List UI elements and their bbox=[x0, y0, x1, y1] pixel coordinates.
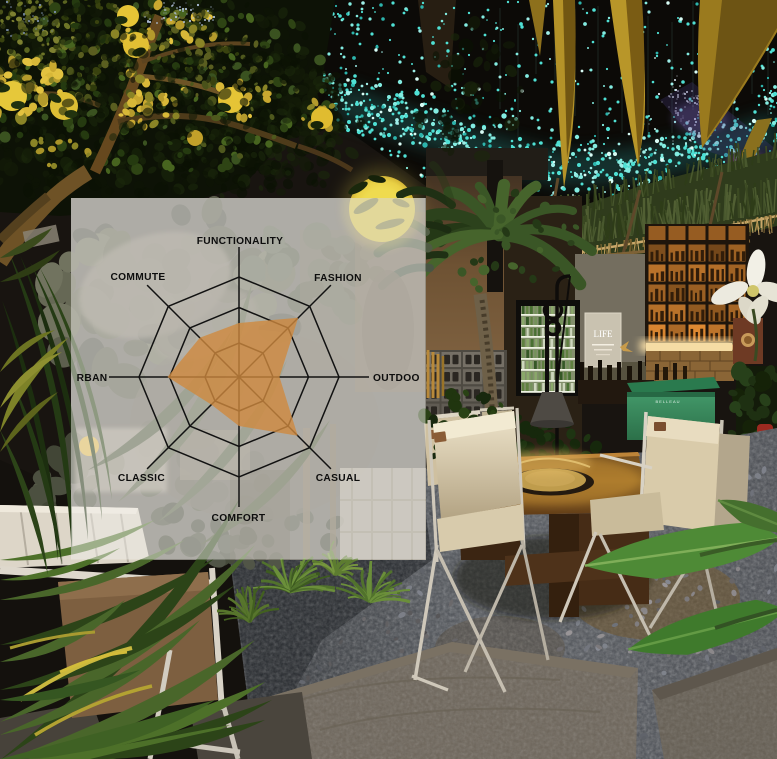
svg-text:COMMUTE: COMMUTE bbox=[110, 272, 165, 283]
svg-text:CASUAL: CASUAL bbox=[316, 473, 361, 484]
svg-text:RBAN: RBAN bbox=[77, 373, 108, 384]
svg-text:COMFORT: COMFORT bbox=[212, 513, 266, 524]
svg-text:BELLEAU: BELLEAU bbox=[655, 399, 680, 404]
svg-text:LIFE: LIFE bbox=[594, 329, 614, 339]
svg-text:FUNCTIONALITY: FUNCTIONALITY bbox=[197, 236, 284, 247]
svg-text:FASHION: FASHION bbox=[314, 273, 362, 284]
svg-text:CLASSIC: CLASSIC bbox=[118, 473, 165, 484]
svg-text:OUTDOO: OUTDOO bbox=[373, 373, 420, 384]
